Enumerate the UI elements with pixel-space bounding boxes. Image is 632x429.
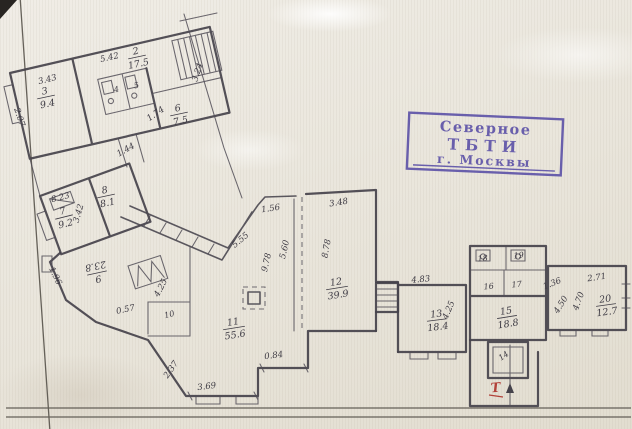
dim-542: 5.42 <box>99 51 120 65</box>
room12-walls <box>306 190 398 352</box>
floorplan-photo: 39.4 217.5 67.5 79.2 88.1 923.8 1155.6 1… <box>0 0 632 429</box>
room10-walls <box>42 246 190 336</box>
wing-b <box>32 164 151 258</box>
room-number-14: 14 <box>497 349 511 362</box>
dim-470: 4.70 <box>571 290 587 313</box>
room-area: 55.6 <box>224 328 247 342</box>
room-area: 18.8 <box>497 317 520 331</box>
stair-shaft-rungs <box>376 289 398 307</box>
dim-425b: 4.25 <box>440 300 457 322</box>
dim-483: 4.83 <box>410 274 431 286</box>
room-label-15: 1518.8 <box>495 304 520 331</box>
room-number: 6 <box>174 103 182 115</box>
room-number-10: 10 <box>163 309 175 320</box>
room-number: 7 <box>58 205 67 217</box>
room-number-5: 5 <box>133 81 140 91</box>
room-number-18: 18 <box>477 254 488 264</box>
dim-084: 0.84 <box>264 350 284 362</box>
room-area: 7.5 <box>172 114 189 128</box>
floorplan-drawing: 39.4 217.5 67.5 79.2 88.1 923.8 1155.6 1… <box>0 0 632 429</box>
dim-555: 5.55 <box>230 231 251 251</box>
room-label-12: 1239.9 <box>324 275 349 302</box>
dim-878: 8.78 <box>320 238 333 259</box>
room-number-19: 19 <box>513 251 524 261</box>
fixture-icon <box>108 98 114 104</box>
dim-136: 1.36 <box>542 276 564 293</box>
room-label-11: 1155.6 <box>221 315 246 342</box>
room-number-17: 17 <box>511 279 523 289</box>
wing-a-outer-links <box>30 13 242 198</box>
room-number: 9 <box>94 272 102 284</box>
dim-144: 1.44 <box>115 141 136 159</box>
photo-corner-shadow <box>0 0 17 19</box>
stair-shaft <box>376 283 398 312</box>
dim-057: 0.57 <box>115 303 136 317</box>
room-label-20: 2012.7 <box>594 293 619 320</box>
dim-425a: 4.25 <box>152 277 170 299</box>
dim-348: 3.48 <box>329 197 350 210</box>
room-area: 23.8 <box>84 258 108 273</box>
room-label-2: 217.5 <box>124 44 150 72</box>
room-area: 18.4 <box>427 321 449 334</box>
dim-823: 8.23 <box>50 191 71 205</box>
fixture-icon <box>131 93 137 99</box>
dim-450: 4.50 <box>552 294 571 317</box>
entrance-letter: Т <box>490 381 502 397</box>
room-label-3: 39.4 <box>35 84 58 111</box>
dim-369: 3.69 <box>197 381 218 393</box>
entrance-mark: Т <box>489 381 503 397</box>
dim-978: 9.78 <box>260 252 274 273</box>
dim-207: 2.07 <box>11 106 27 129</box>
room-area: 12.7 <box>596 305 619 319</box>
dim-560: 5.60 <box>278 239 292 260</box>
room-area: 8.1 <box>99 196 116 210</box>
room-number-16: 16 <box>483 282 494 292</box>
dim-271: 2.71 <box>586 272 607 285</box>
room-number: 8 <box>101 185 109 197</box>
room-label-9: 923.8 <box>84 258 111 286</box>
column-dashed <box>243 287 265 309</box>
room-area: 39.9 <box>327 288 350 302</box>
room-number-4: 4 <box>112 85 120 95</box>
bti-stamp: Северное ТБТИ г. Москвы <box>407 113 563 176</box>
room-area: 9.4 <box>39 97 56 111</box>
dim-343: 3.43 <box>37 73 58 87</box>
column-core <box>248 292 260 304</box>
dim-342: 3.42 <box>72 203 87 224</box>
corridor-hatch <box>144 216 214 254</box>
room-label-6: 67.5 <box>168 101 191 128</box>
dim-174: 1.74 <box>145 105 166 124</box>
wing-a-stairs-and-fixtures <box>2 31 225 135</box>
entrance-arrow-icon <box>506 383 514 393</box>
dim-196: 1.96 <box>46 265 64 287</box>
room-number: 3 <box>41 86 49 98</box>
room-number: 2 <box>131 46 140 58</box>
dim-156: 1.56 <box>261 203 282 216</box>
